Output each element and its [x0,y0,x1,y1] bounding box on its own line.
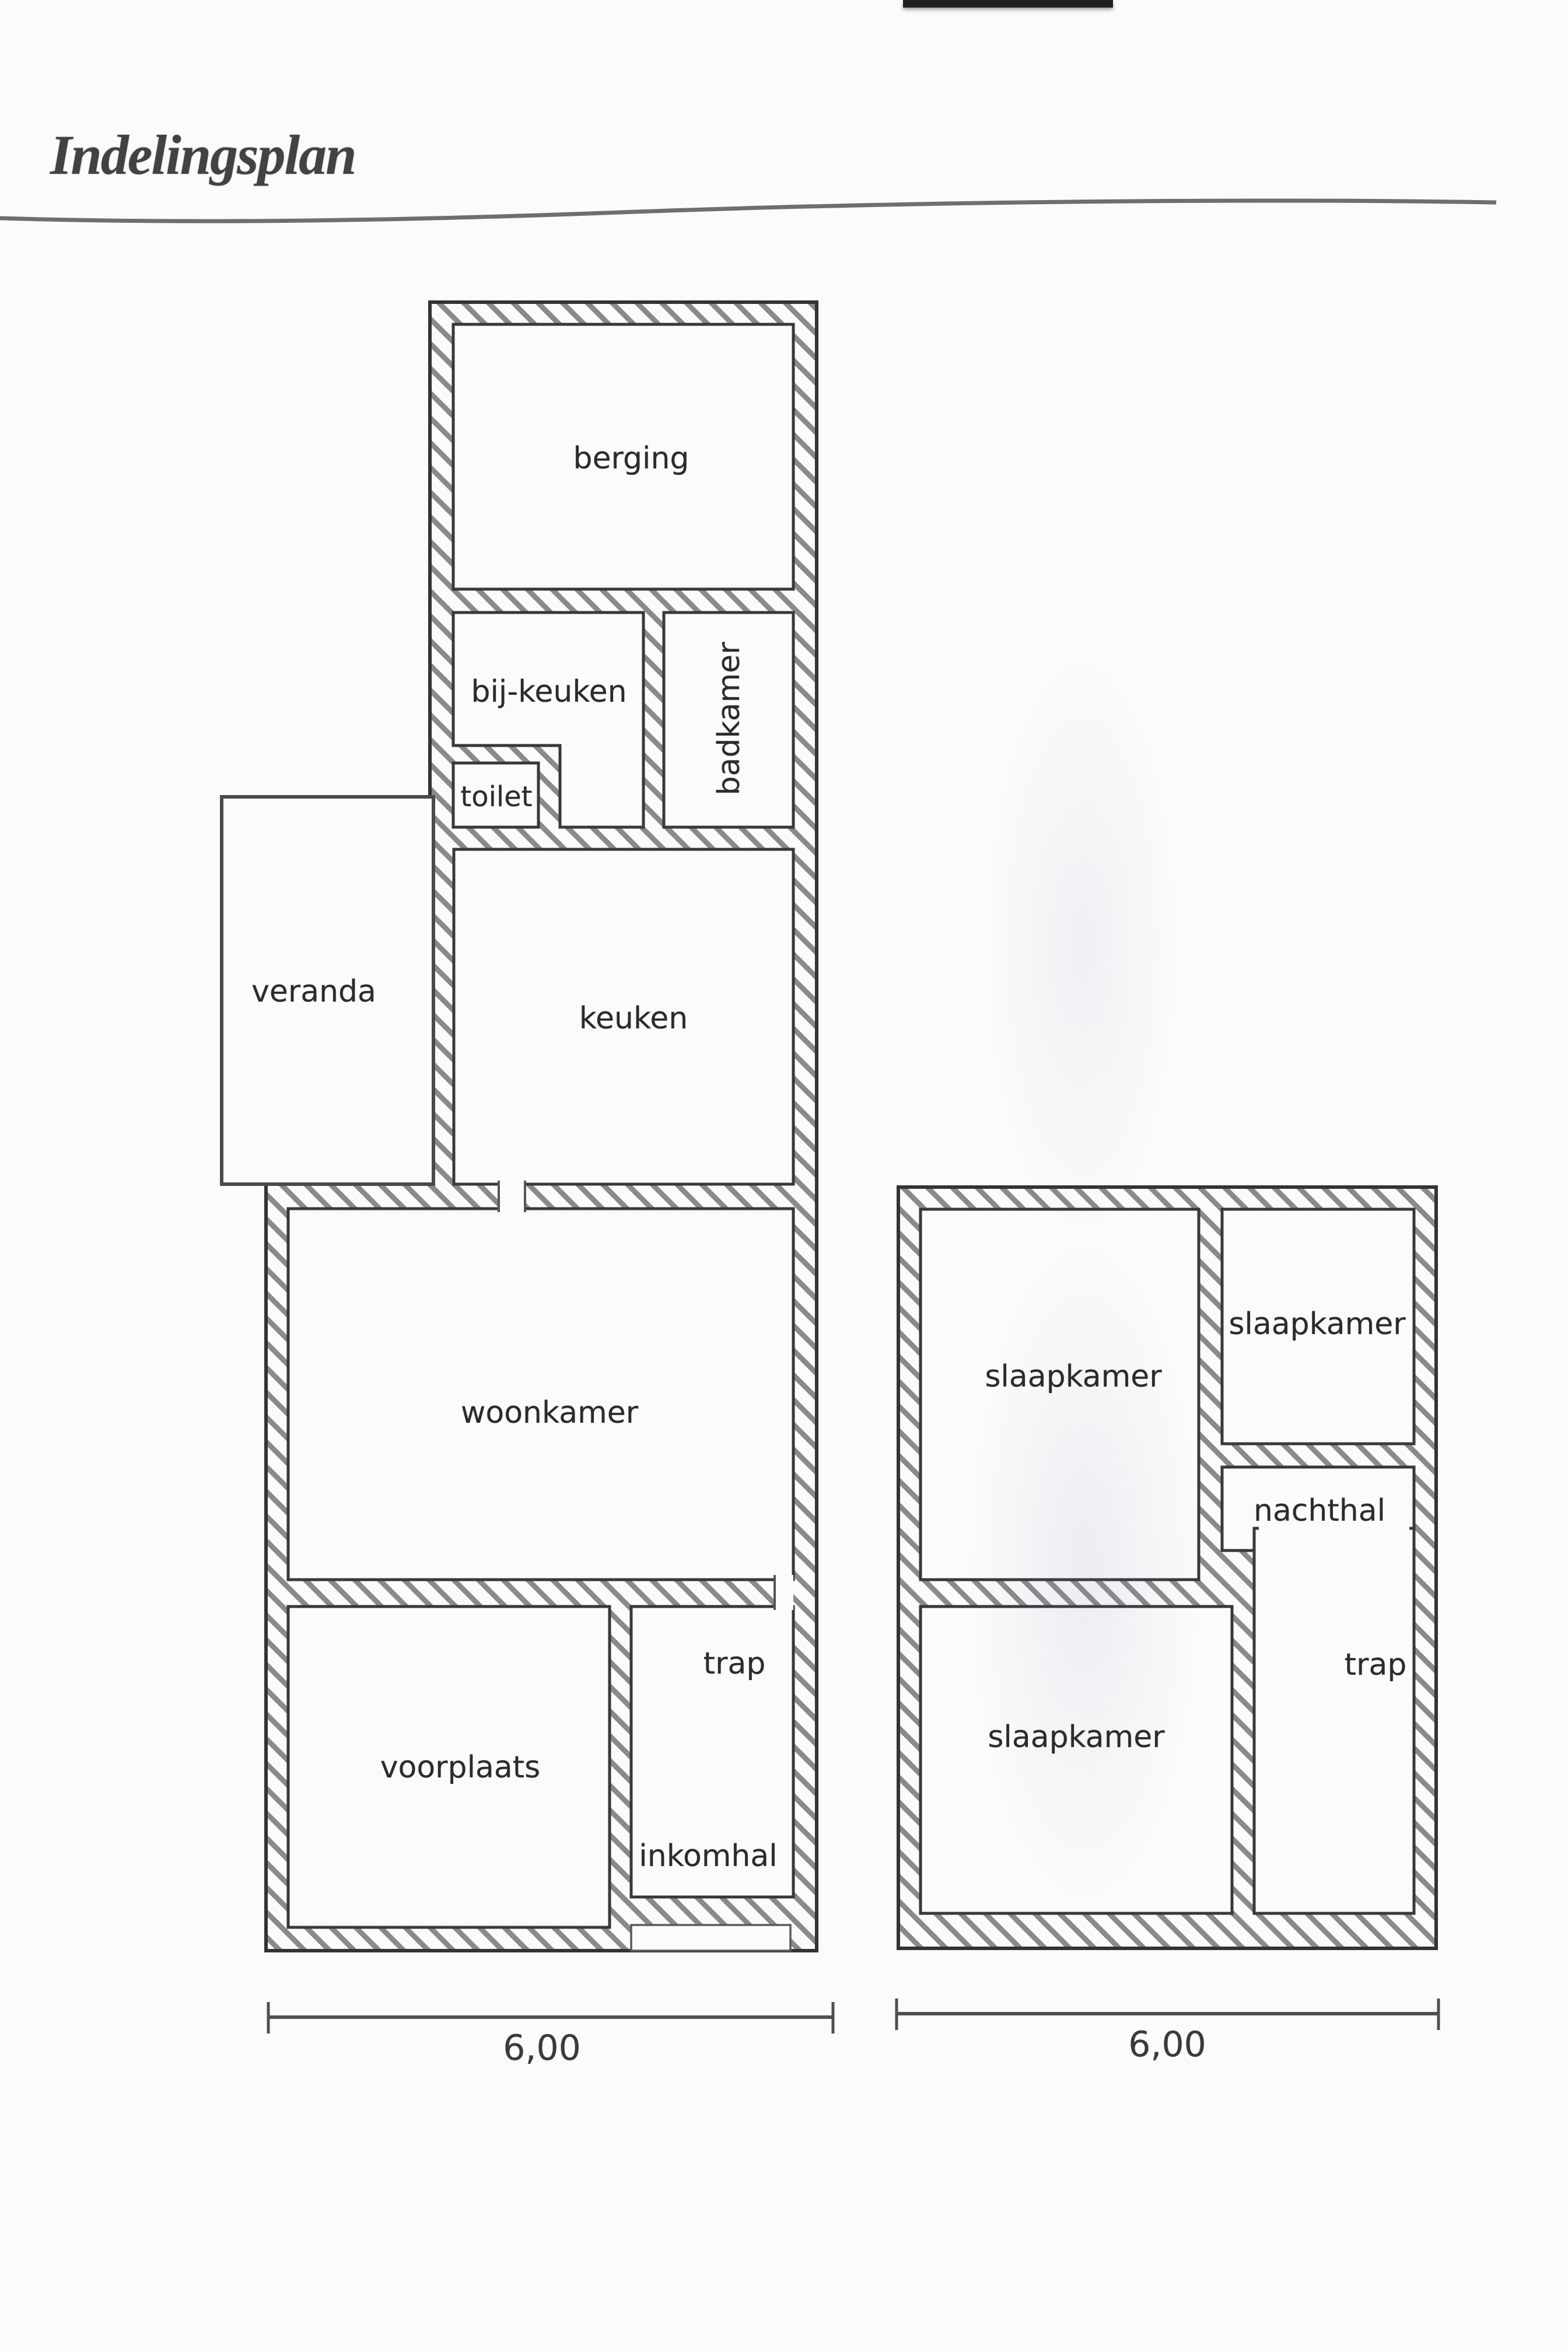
front-door-recess [631,1925,790,1951]
scanned-floor-plan-page: Indelingsplan [0,0,1568,2352]
doorway-keuken-woonkamer [499,1181,525,1212]
dimension-text-ground: 6,00 [503,2028,581,2068]
title-underline [0,201,1496,221]
ground-floor-plan [222,302,817,1951]
room-label-badkamer: badkamer [712,642,747,796]
upper-floor-plan [898,1187,1436,1948]
room-label-bij-keuken: bij-keuken [471,674,626,709]
room-label-keuken: keuken [579,1001,688,1036]
room-label-inkomhal: inkomhal [639,1839,777,1874]
room-label-slaapkamer-front: slaapkamer [985,1359,1161,1394]
room-label-nachthal: nachthal [1254,1493,1385,1528]
doorway-woonkamer-hal [775,1575,793,1610]
dimension-text-upper: 6,00 [1128,2024,1206,2065]
room-label-veranda: veranda [251,974,376,1009]
room-label-trap-ground: trap [703,1646,766,1681]
room-label-slaapkamer-back: slaapkamer [988,1720,1164,1755]
room-label-slaapkamer-small: slaapkamer [1228,1307,1405,1342]
floor-plan-drawing [0,0,1568,2352]
room-label-woonkamer: woonkamer [461,1395,638,1430]
room-slaapkamer-front [921,1209,1199,1580]
room-slaapkamer-back [921,1606,1232,1913]
room-label-berging: berging [573,441,689,476]
room-label-trap-upper: trap [1345,1647,1407,1682]
room-label-toilet: toilet [460,780,532,813]
room-label-voorplaats: voorplaats [380,1750,540,1785]
room-trap-upper [1254,1528,1414,1913]
room-woonkamer [288,1209,793,1580]
